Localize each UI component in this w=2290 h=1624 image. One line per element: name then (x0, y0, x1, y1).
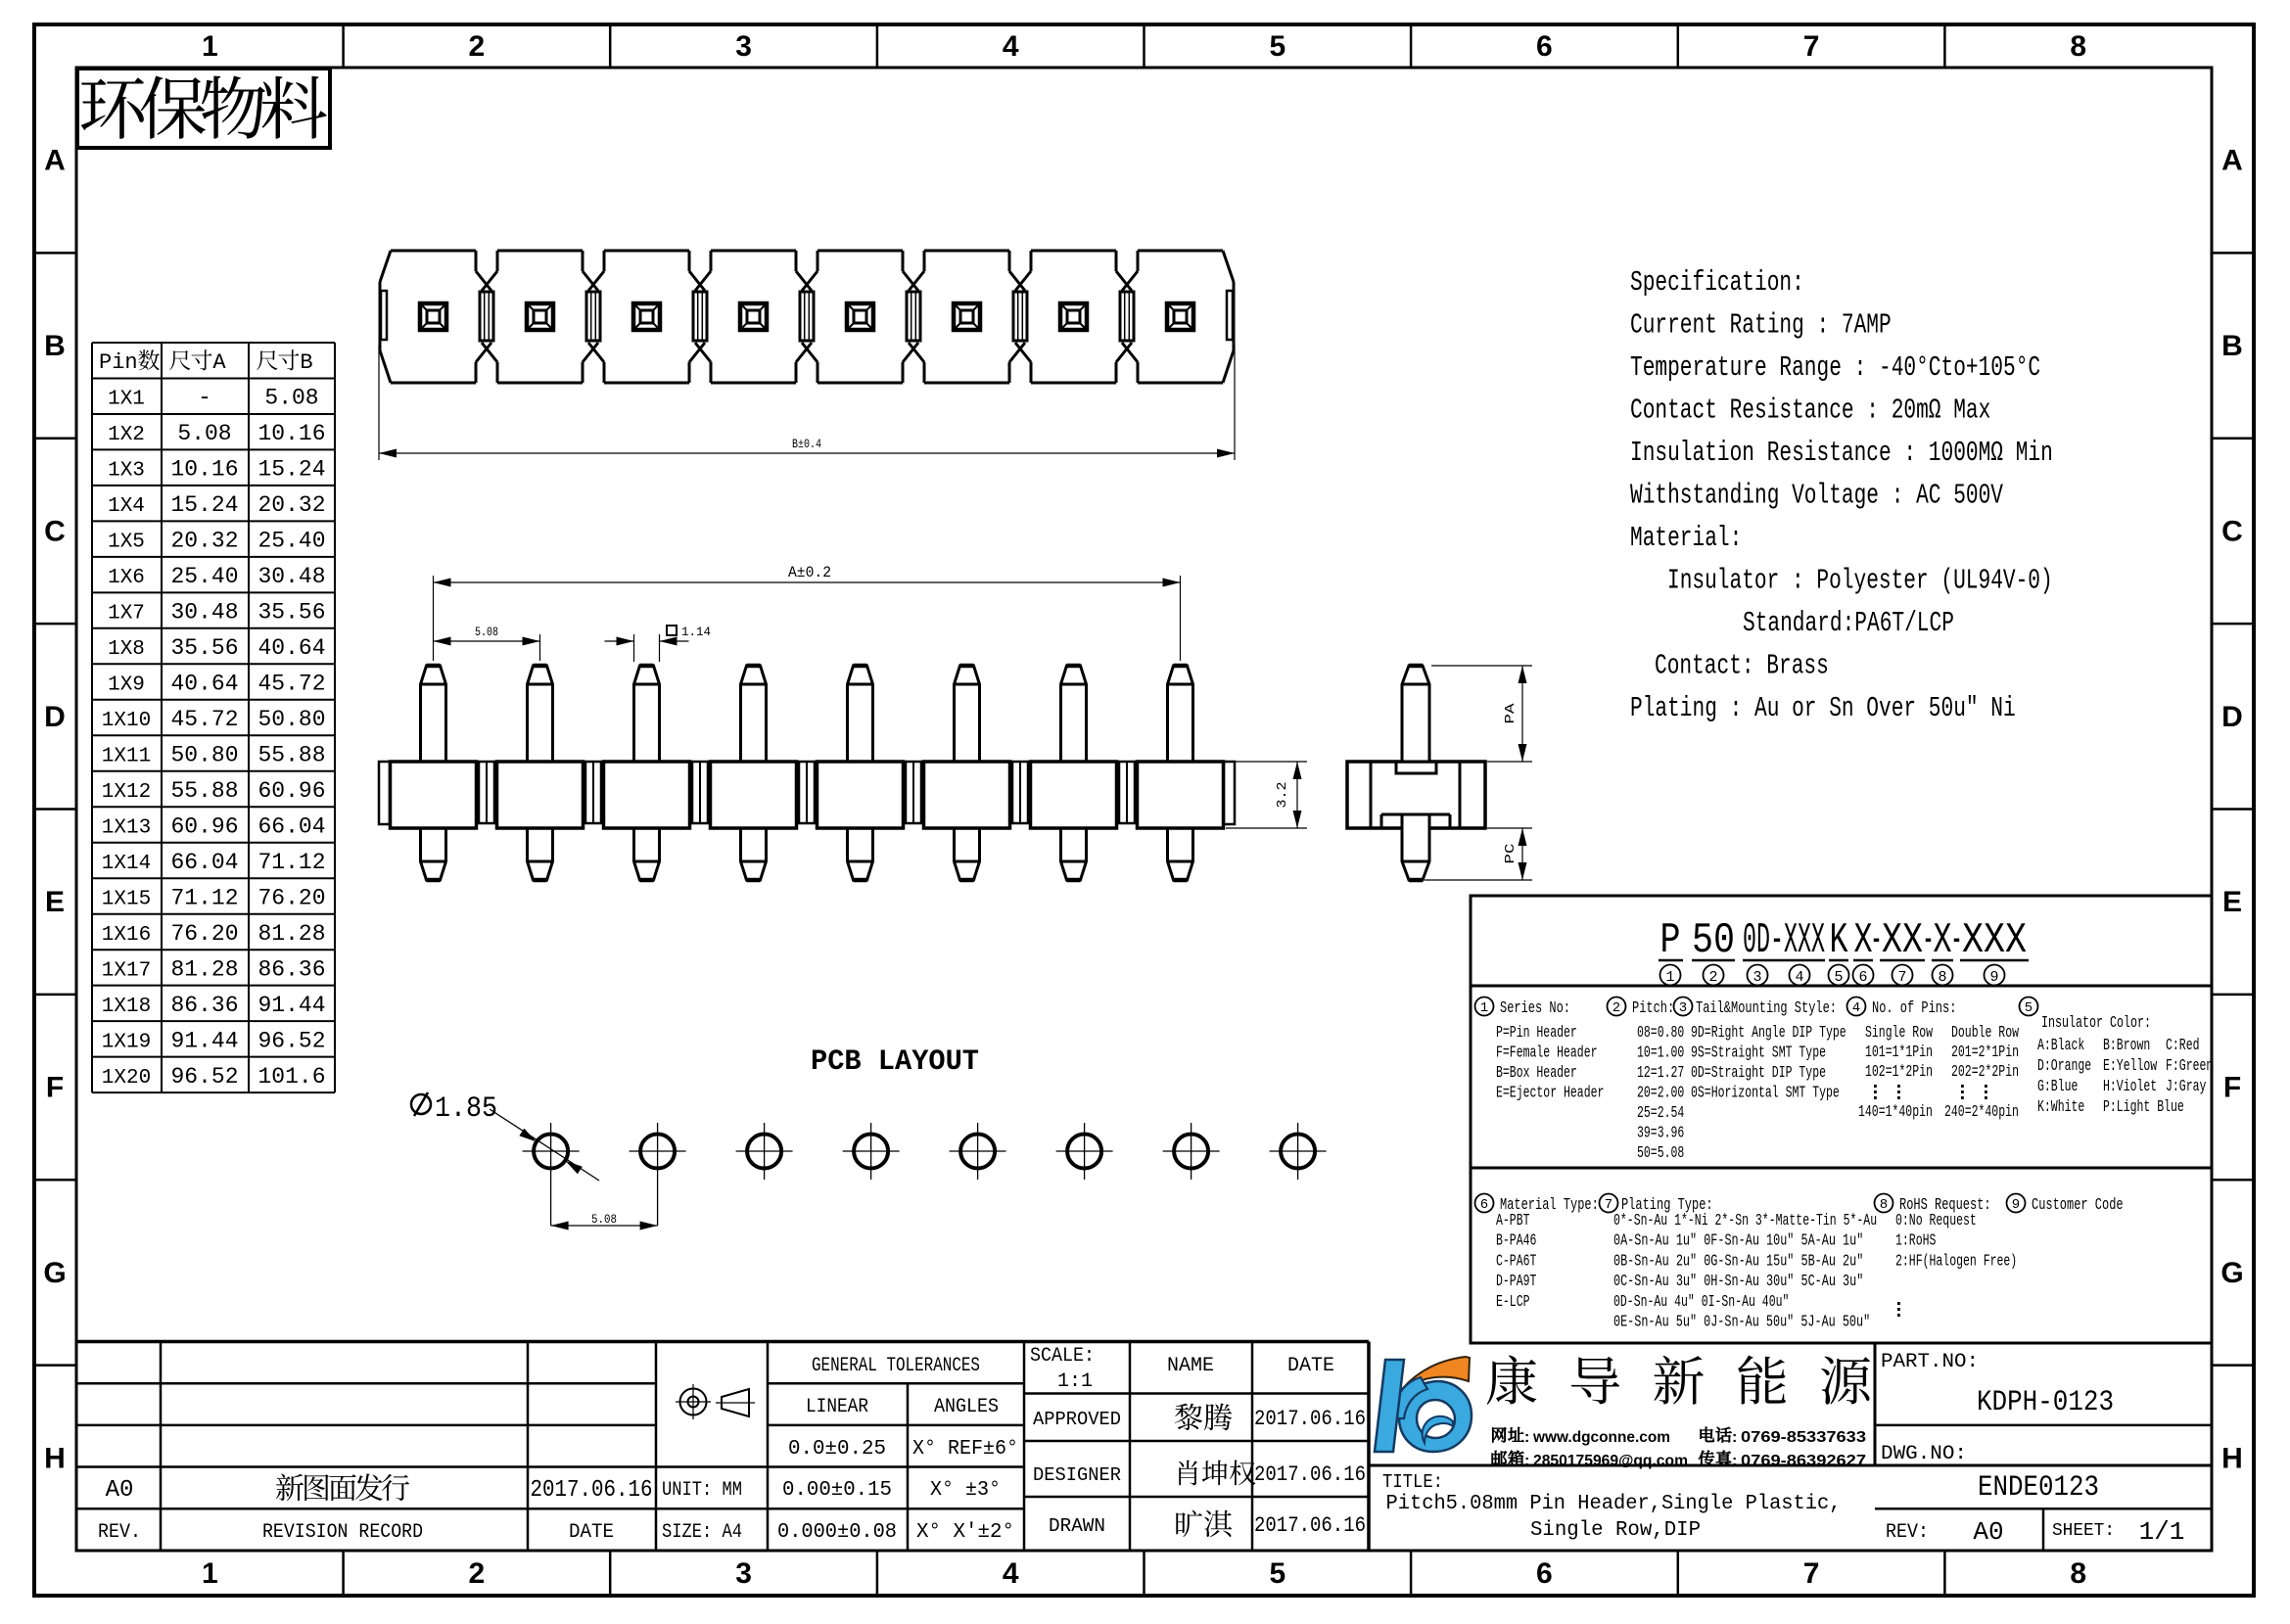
svg-text:A: A (212, 350, 226, 375)
svg-text:1X15: 1X15 (102, 888, 151, 910)
svg-text:1X8: 1X8 (108, 638, 145, 661)
svg-text:5: 5 (1269, 1557, 1285, 1590)
svg-text:7: 7 (1803, 30, 1820, 63)
svg-text:1X4: 1X4 (108, 495, 145, 518)
svg-text:25.40: 25.40 (257, 529, 325, 554)
svg-text:45.72: 45.72 (257, 672, 325, 697)
svg-text:Withstanding Voltage : AC 500V: Withstanding Voltage : AC 500V (1630, 480, 2003, 512)
svg-text:1.85: 1.85 (435, 1092, 497, 1126)
svg-text:9S=Straight SMT Type: 9S=Straight SMT Type (1691, 1044, 1826, 1063)
svg-text:1X5: 1X5 (108, 532, 145, 554)
svg-text:B: B (44, 330, 66, 362)
svg-text:G: G (43, 1257, 66, 1289)
svg-text:F: F (2223, 1072, 2241, 1104)
svg-text:B: B (2221, 330, 2243, 362)
svg-text:A±0.2: A±0.2 (788, 564, 831, 581)
svg-text:1X3: 1X3 (108, 460, 145, 483)
svg-text:91.44: 91.44 (170, 1028, 238, 1053)
svg-text:86.36: 86.36 (257, 956, 325, 982)
svg-text:8: 8 (1938, 969, 1946, 986)
svg-text:H: H (44, 1442, 66, 1474)
svg-text:0.0±0.25: 0.0±0.25 (788, 1438, 886, 1461)
svg-text:UNIT: MM: UNIT: MM (662, 1479, 742, 1502)
svg-text:3: 3 (1679, 1000, 1687, 1016)
svg-text:1:RoHS: 1:RoHS (1895, 1232, 1936, 1251)
svg-text:55.88: 55.88 (170, 778, 238, 804)
svg-text:Single Row,DIP: Single Row,DIP (1530, 1519, 1701, 1542)
svg-text:50: 50 (1692, 916, 1735, 965)
svg-text:35.56: 35.56 (257, 600, 325, 626)
svg-text:3: 3 (735, 1557, 752, 1590)
svg-text:7: 7 (1605, 1197, 1612, 1213)
svg-text:E-LCP: E-LCP (1496, 1293, 1530, 1312)
svg-text:5.08: 5.08 (591, 1212, 617, 1227)
svg-text:4: 4 (1795, 969, 1803, 986)
svg-text:A: A (2221, 145, 2243, 177)
svg-text:1X18: 1X18 (102, 996, 151, 1018)
svg-text:PART.NO:: PART.NO: (1881, 1351, 1979, 1373)
svg-text:Tail&Mounting Style:: Tail&Mounting Style: (1696, 999, 1837, 1018)
svg-text:0D-Sn-Au 4u″ 0I-Sn-Au 40u″: 0D-Sn-Au 4u″ 0I-Sn-Au 40u″ (1613, 1293, 1789, 1312)
svg-text:2017.06.16: 2017.06.16 (531, 1477, 653, 1504)
svg-text:Plating : Au or Sn Over 50u″ N: Plating : Au or Sn Over 50u″ Ni (1630, 692, 2016, 724)
svg-text:0*-Sn-Au 1*-Ni 2*-Sn 3*-Matte-: 0*-Sn-Au 1*-Ni 2*-Sn 3*-Matte-Tin 5*-Au (1613, 1212, 1877, 1230)
svg-text:2850175969@qq.com: 2850175969@qq.com (1533, 1453, 1688, 1469)
svg-text:102=1*2Pin: 102=1*2Pin (1865, 1063, 1933, 1082)
svg-text:4: 4 (1852, 1000, 1860, 1016)
svg-text:XXX: XXX (1962, 916, 2027, 965)
svg-text:C: C (44, 515, 66, 547)
svg-text:SIZE: A4: SIZE: A4 (662, 1521, 742, 1544)
svg-text:D: D (44, 701, 66, 733)
svg-text:REV:: REV: (1886, 1521, 1929, 1544)
svg-text:APPROVED: APPROVED (1033, 1409, 1121, 1430)
svg-text:1: 1 (202, 30, 218, 63)
svg-text:7: 7 (1897, 969, 1906, 986)
svg-text:39=3.96: 39=3.96 (1637, 1125, 1684, 1143)
svg-text:1X19: 1X19 (102, 1031, 151, 1053)
svg-text:G: G (2220, 1257, 2243, 1289)
svg-text:KDPH-0123: KDPH-0123 (1977, 1386, 2114, 1419)
svg-text:D:Orange: D:Orange (2037, 1057, 2091, 1076)
svg-text:10.16: 10.16 (257, 421, 325, 446)
svg-text:1X10: 1X10 (102, 710, 151, 732)
svg-text:20=2.00: 20=2.00 (1637, 1085, 1684, 1103)
svg-text:50=5.08: 50=5.08 (1637, 1144, 1684, 1163)
svg-text:5.08: 5.08 (264, 386, 318, 411)
svg-text:6: 6 (1536, 1557, 1553, 1590)
svg-text:5.08: 5.08 (475, 625, 498, 639)
svg-text:81.28: 81.28 (257, 921, 325, 947)
svg-text:96.52: 96.52 (170, 1064, 238, 1090)
svg-text:1X6: 1X6 (108, 567, 145, 589)
svg-text:4: 4 (1003, 30, 1019, 63)
svg-text:A:Black: A:Black (2037, 1037, 2084, 1055)
svg-text:XX: XX (1882, 916, 1923, 965)
svg-text:3: 3 (1753, 969, 1761, 986)
svg-text:66.04: 66.04 (170, 850, 238, 875)
svg-text:B-PA46: B-PA46 (1496, 1232, 1536, 1251)
svg-text:1X13: 1X13 (102, 817, 151, 840)
svg-text:ANGLES: ANGLES (934, 1396, 999, 1418)
svg-text:Pitch:: Pitch: (1632, 999, 1674, 1018)
svg-text:Contact Resistance : 20mΩ Max: Contact Resistance : 20mΩ Max (1630, 394, 1990, 427)
svg-text:0A-Sn-Au 1u″ 0F-Sn-Au 10u″ 5A: 0A-Sn-Au 1u″ 0F-Sn-Au 10u″ 5A-Au 1u″ (1613, 1232, 1863, 1251)
svg-text:LINEAR: LINEAR (806, 1396, 868, 1418)
svg-text:1: 1 (202, 1557, 218, 1590)
svg-text:B±0.4: B±0.4 (792, 437, 821, 451)
svg-text:Material:: Material: (1630, 522, 1742, 554)
svg-text:K: K (1830, 916, 1848, 965)
svg-text:Insulator Color:: Insulator Color: (2041, 1014, 2151, 1033)
svg-text:30.48: 30.48 (170, 600, 238, 626)
svg-text:Insulation Resistance : 1000MΩ: Insulation Resistance : 1000MΩ Min (1630, 437, 2053, 469)
svg-text:45.72: 45.72 (170, 707, 238, 732)
svg-text:81.28: 81.28 (170, 956, 238, 982)
svg-text:0D-XXX: 0D-XXX (1743, 916, 1825, 965)
svg-text:K:White: K:White (2037, 1098, 2084, 1117)
svg-text:2: 2 (1612, 1000, 1620, 1016)
svg-text:PCB LAYOUT: PCB LAYOUT (811, 1045, 979, 1079)
svg-text:5.08: 5.08 (177, 421, 231, 446)
svg-text:9D=Right Angle DIP Type: 9D=Right Angle DIP Type (1691, 1024, 1846, 1043)
svg-text:2:HF(Halogen Free): 2:HF(Halogen Free) (1895, 1252, 2017, 1271)
svg-text:0.00±0.15: 0.00±0.15 (782, 1479, 892, 1502)
svg-text:2017.06.16: 2017.06.16 (1254, 1407, 1366, 1431)
svg-text::: : (1732, 1429, 1737, 1446)
svg-text:55.88: 55.88 (257, 743, 325, 768)
svg-text:1/1: 1/1 (2139, 1517, 2185, 1547)
svg-text:Specification:: Specification: (1630, 266, 1804, 299)
svg-text:SHEET:: SHEET: (2052, 1521, 2115, 1541)
svg-text:6: 6 (1536, 30, 1553, 63)
svg-text:1X7: 1X7 (108, 603, 145, 626)
svg-text:0769-85337633: 0769-85337633 (1741, 1429, 1866, 1446)
svg-text:F=Female Header: F=Female Header (1496, 1044, 1598, 1063)
svg-text:86.36: 86.36 (170, 993, 238, 1018)
svg-text:10.16: 10.16 (170, 457, 238, 483)
svg-text:0769-86392627: 0769-86392627 (1741, 1453, 1866, 1469)
svg-text:P=Pin Header: P=Pin Header (1496, 1024, 1577, 1043)
svg-text:1X14: 1X14 (102, 853, 151, 875)
svg-text:1X2: 1X2 (108, 424, 145, 446)
svg-text:6: 6 (1858, 969, 1867, 986)
svg-text:140=1*40pin: 140=1*40pin (1858, 1103, 1933, 1122)
svg-text:X: X (1934, 916, 1952, 965)
svg-text:SCALE:: SCALE: (1030, 1345, 1095, 1368)
svg-text:5: 5 (1834, 969, 1843, 986)
svg-text:9: 9 (1989, 969, 1998, 986)
svg-text:101=1*1Pin: 101=1*1Pin (1865, 1044, 1933, 1062)
svg-text:NAME: NAME (1167, 1355, 1214, 1377)
svg-text:71.12: 71.12 (257, 850, 325, 875)
svg-text:60.96: 60.96 (170, 814, 238, 840)
svg-text:A0: A0 (106, 1477, 134, 1504)
svg-text:76.20: 76.20 (257, 885, 325, 910)
svg-text:1X17: 1X17 (102, 959, 151, 982)
svg-text:-: - (1951, 916, 1963, 965)
svg-text:P:Light Blue: P:Light Blue (2103, 1098, 2184, 1117)
svg-text:2017.06.16: 2017.06.16 (1254, 1462, 1366, 1487)
svg-text:A-PBT: A-PBT (1496, 1212, 1530, 1230)
svg-text:0D=Straight DIP Type: 0D=Straight DIP Type (1691, 1064, 1826, 1083)
svg-text:J:Gray: J:Gray (2166, 1078, 2206, 1096)
svg-text:G:Blue: G:Blue (2037, 1078, 2078, 1096)
svg-text:DATE: DATE (1287, 1355, 1334, 1377)
svg-text:DRAWN: DRAWN (1049, 1515, 1105, 1537)
svg-text:-: - (1871, 916, 1883, 965)
svg-text:Insulator : Polyester (UL94V-0: Insulator : Polyester (UL94V-0) (1667, 565, 2053, 597)
svg-text:D: D (2221, 701, 2243, 733)
svg-text:www.dgconne.com: www.dgconne.com (1532, 1429, 1670, 1446)
svg-text:Series No:: Series No: (1500, 999, 1570, 1018)
svg-text:1X12: 1X12 (102, 781, 151, 804)
svg-text:101.6: 101.6 (257, 1064, 325, 1090)
svg-text:1X16: 1X16 (102, 924, 151, 947)
svg-text:PC: PC (1503, 844, 1519, 864)
svg-text:40.64: 40.64 (170, 672, 238, 697)
svg-text:15.24: 15.24 (257, 457, 325, 483)
svg-text:12=1.27: 12=1.27 (1637, 1064, 1684, 1083)
svg-text:E: E (45, 886, 65, 918)
svg-text:201=2*1Pin: 201=2*1Pin (1951, 1044, 2019, 1062)
svg-text:9: 9 (2012, 1197, 2020, 1213)
svg-text::: : (1524, 1429, 1529, 1446)
svg-text:E=Ejector Header: E=Ejector Header (1496, 1085, 1604, 1103)
svg-text:60.96: 60.96 (257, 778, 325, 804)
svg-text:71.12: 71.12 (170, 885, 238, 910)
svg-text:1X1: 1X1 (108, 389, 145, 411)
svg-text:35.56: 35.56 (170, 635, 238, 661)
svg-text:8: 8 (1880, 1197, 1888, 1213)
svg-text:Standard:PA6T/LCP: Standard:PA6T/LCP (1743, 607, 1954, 639)
svg-text:7: 7 (1803, 1557, 1820, 1590)
svg-text:8: 8 (2070, 30, 2086, 63)
svg-text:1X20: 1X20 (102, 1067, 151, 1090)
svg-text:25.40: 25.40 (170, 564, 238, 589)
svg-text:X° Xʹ±2°: X° Xʹ±2° (916, 1521, 1014, 1544)
svg-text:REV.: REV. (98, 1521, 141, 1544)
svg-text:A: A (44, 145, 66, 177)
svg-text:08=0.80: 08=0.80 (1637, 1024, 1684, 1043)
svg-text:91.44: 91.44 (257, 993, 325, 1018)
svg-text:No. of Pins:: No. of Pins: (1872, 999, 1956, 1018)
svg-text:96.52: 96.52 (257, 1028, 325, 1053)
svg-text:Temperature Range : -40°Cto+10: Temperature Range : -40°Cto+105°C (1630, 351, 2040, 384)
svg-text:Double Row: Double Row (1951, 1024, 2020, 1043)
svg-text:0C-Sn-Au 3u″ 0H-Sn-Au 30u″ 5C: 0C-Sn-Au 3u″ 0H-Sn-Au 30u″ 5C-Au 3u″ (1613, 1273, 1863, 1291)
svg-text:10=1.00: 10=1.00 (1637, 1044, 1684, 1063)
svg-text:25=2.54: 25=2.54 (1637, 1104, 1684, 1123)
svg-text:-: - (198, 386, 211, 411)
svg-text:PA: PA (1503, 703, 1519, 724)
svg-text:2017.06.16: 2017.06.16 (1254, 1513, 1366, 1538)
svg-text:2: 2 (469, 30, 486, 63)
svg-text:0:No Request: 0:No Request (1895, 1212, 1977, 1230)
svg-text:TITLE:: TITLE: (1382, 1471, 1443, 1493)
svg-text:D-PA9T: D-PA9T (1496, 1273, 1536, 1291)
svg-text:Pin: Pin (99, 350, 138, 375)
svg-text:E:Yellow: E:Yellow (2103, 1057, 2158, 1076)
svg-text:202=2*2Pin: 202=2*2Pin (1951, 1063, 2019, 1082)
svg-text:E: E (2222, 886, 2242, 918)
svg-text:Current Rating : 7AMP: Current Rating : 7AMP (1630, 309, 1892, 342)
svg-text:4: 4 (1003, 1557, 1019, 1590)
svg-text:50.80: 50.80 (257, 707, 325, 732)
svg-text:76.20: 76.20 (170, 921, 238, 947)
svg-text:C-PA6T: C-PA6T (1496, 1252, 1536, 1271)
svg-text:30.48: 30.48 (257, 564, 325, 589)
svg-text:66.04: 66.04 (257, 814, 325, 840)
svg-text:50.80: 50.80 (170, 743, 238, 768)
svg-text:2: 2 (469, 1557, 486, 1590)
svg-text:2: 2 (1708, 969, 1717, 986)
svg-text:B:Brown: B:Brown (2103, 1037, 2150, 1055)
svg-text:X° REF±6°: X° REF±6° (912, 1438, 1018, 1461)
svg-text:8: 8 (2070, 1557, 2086, 1590)
svg-text:Single Row: Single Row (1865, 1024, 1934, 1043)
svg-text:H:Violet: H:Violet (2103, 1078, 2157, 1096)
svg-text:1X9: 1X9 (108, 674, 145, 697)
svg-text:3.2: 3.2 (1275, 782, 1290, 809)
svg-text:0.000±0.08: 0.000±0.08 (777, 1521, 897, 1544)
svg-text:A0: A0 (1973, 1517, 2003, 1547)
svg-text:DATE: DATE (569, 1521, 614, 1544)
svg-text:X° ±3°: X° ±3° (930, 1479, 1001, 1502)
svg-text:ENDE0123: ENDE0123 (1978, 1471, 2099, 1505)
svg-text:1: 1 (1665, 969, 1674, 986)
svg-text:240=2*40pin: 240=2*40pin (1944, 1103, 2019, 1122)
svg-text:1:1: 1:1 (1057, 1370, 1093, 1393)
svg-text:Customer Code: Customer Code (2032, 1196, 2124, 1215)
svg-text:DWG.NO:: DWG.NO: (1881, 1443, 1967, 1465)
svg-text:0B-Sn-Au 2u″ 0G-Sn-Au 15u″ 5B: 0B-Sn-Au 2u″ 0G-Sn-Au 15u″ 5B-Au 2u″ (1613, 1252, 1863, 1271)
svg-text:F:Green: F:Green (2166, 1057, 2213, 1076)
svg-text:3: 3 (735, 30, 752, 63)
svg-text:15.24: 15.24 (170, 492, 238, 518)
svg-text::: : (1524, 1453, 1529, 1469)
svg-text:DESIGNER: DESIGNER (1033, 1464, 1121, 1486)
svg-text:0S=Horizontal SMT Type: 0S=Horizontal SMT Type (1691, 1085, 1840, 1103)
svg-text:1X11: 1X11 (102, 746, 151, 768)
svg-text:P: P (1660, 916, 1681, 965)
svg-text:0E-Sn-Au 5u″ 0J-Sn-Au 50u″ 5J: 0E-Sn-Au 5u″ 0J-Sn-Au 50u″ 5J-Au 50u″ (1613, 1314, 1870, 1332)
svg-text:B: B (300, 350, 312, 375)
svg-text:Contact: Brass: Contact: Brass (1655, 650, 1829, 682)
svg-text:GENERAL TOLERANCES: GENERAL TOLERANCES (812, 1355, 980, 1377)
svg-text:5: 5 (1269, 30, 1285, 63)
svg-text:F: F (46, 1072, 64, 1104)
svg-text:20.32: 20.32 (170, 529, 238, 554)
svg-text:40.64: 40.64 (257, 635, 325, 661)
svg-text:20.32: 20.32 (257, 492, 325, 518)
svg-text:C: C (2221, 515, 2243, 547)
svg-text:1: 1 (1480, 1000, 1488, 1016)
svg-text:6: 6 (1480, 1197, 1488, 1213)
svg-text:H: H (2221, 1442, 2243, 1474)
svg-text:5: 5 (2025, 1000, 2033, 1016)
svg-text:B=Box Header: B=Box Header (1496, 1064, 1577, 1083)
svg-text:Pitch5.08mm Pin Header,Single: Pitch5.08mm Pin Header,Single Plastic, (1386, 1493, 1842, 1515)
svg-text:C:Red: C:Red (2166, 1037, 2200, 1055)
svg-text::: : (1732, 1453, 1737, 1469)
svg-text:REVISION RECORD: REVISION RECORD (262, 1521, 423, 1544)
svg-text:1.14: 1.14 (681, 625, 711, 639)
